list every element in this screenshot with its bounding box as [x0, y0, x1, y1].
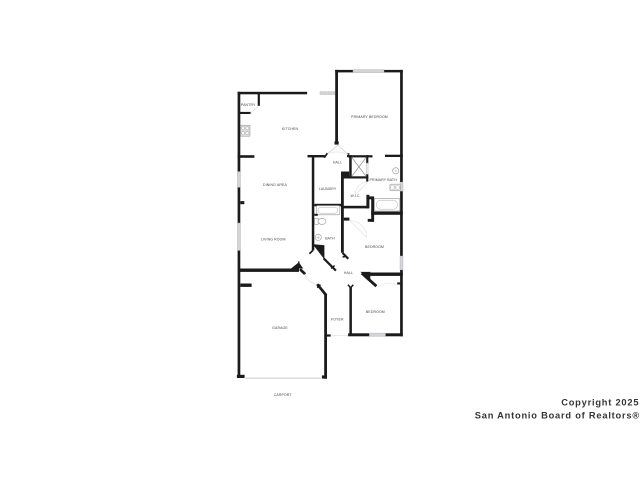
svg-text:San Antonio Board of Realtors®: San Antonio Board of Realtors® [475, 410, 640, 420]
svg-text:PRIMARY BATH: PRIMARY BATH [370, 178, 398, 182]
svg-text:DINING AREA: DINING AREA [263, 183, 287, 187]
svg-text:HALL: HALL [333, 160, 342, 164]
svg-text:Copyright 2025: Copyright 2025 [561, 398, 639, 408]
svg-text:PANTRY: PANTRY [241, 103, 256, 107]
svg-text:LAUNDRY: LAUNDRY [319, 187, 337, 191]
svg-text:FOYER: FOYER [331, 318, 344, 322]
svg-text:BATH: BATH [325, 236, 335, 240]
svg-text:PRIMARY BEDROOM: PRIMARY BEDROOM [351, 115, 388, 119]
svg-text:GARAGE: GARAGE [272, 326, 288, 330]
svg-text:BEDROOM: BEDROOM [365, 245, 384, 249]
svg-text:W.I.C.: W.I.C. [350, 194, 360, 198]
svg-text:HALL: HALL [344, 271, 353, 275]
svg-text:KITCHEN: KITCHEN [282, 127, 299, 131]
svg-text:CARPORT: CARPORT [274, 393, 293, 397]
svg-text:LIVING ROOM: LIVING ROOM [261, 237, 286, 241]
svg-text:BEDROOM: BEDROOM [366, 310, 385, 314]
